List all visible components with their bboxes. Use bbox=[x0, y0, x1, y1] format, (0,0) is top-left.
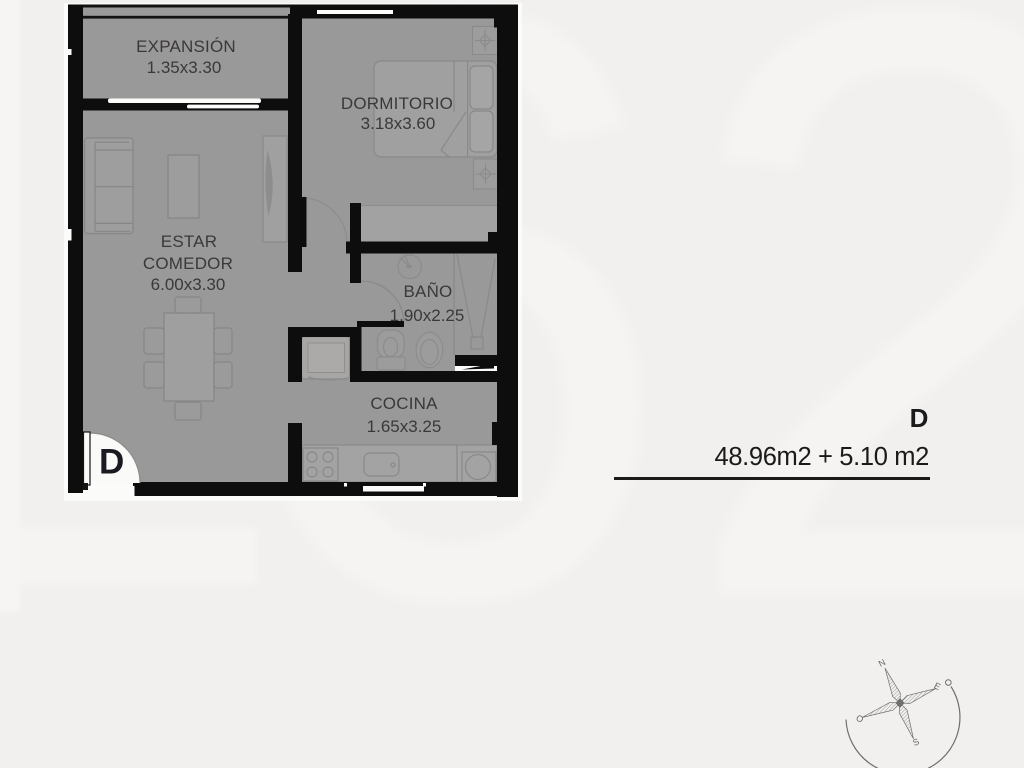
svg-text:ESTAR: ESTAR bbox=[161, 232, 217, 251]
svg-text:1.90x2.25: 1.90x2.25 bbox=[390, 306, 465, 325]
svg-text:1.35x3.30: 1.35x3.30 bbox=[147, 58, 222, 77]
svg-text:D: D bbox=[910, 403, 929, 433]
svg-text:6.00x3.30: 6.00x3.30 bbox=[151, 275, 226, 294]
svg-text:COMEDOR: COMEDOR bbox=[143, 254, 233, 273]
svg-text:3.18x3.60: 3.18x3.60 bbox=[361, 114, 436, 133]
svg-text:D: D bbox=[99, 443, 124, 482]
svg-text:BAÑO: BAÑO bbox=[404, 282, 453, 301]
svg-text:COCINA: COCINA bbox=[370, 394, 438, 413]
svg-text:1.65x3.25: 1.65x3.25 bbox=[367, 417, 442, 436]
svg-text:EXPANSIÓN: EXPANSIÓN bbox=[136, 37, 236, 56]
svg-text:48.96m2 + 5.10 m2: 48.96m2 + 5.10 m2 bbox=[715, 443, 930, 471]
svg-text:DORMITORIO: DORMITORIO bbox=[341, 94, 453, 113]
